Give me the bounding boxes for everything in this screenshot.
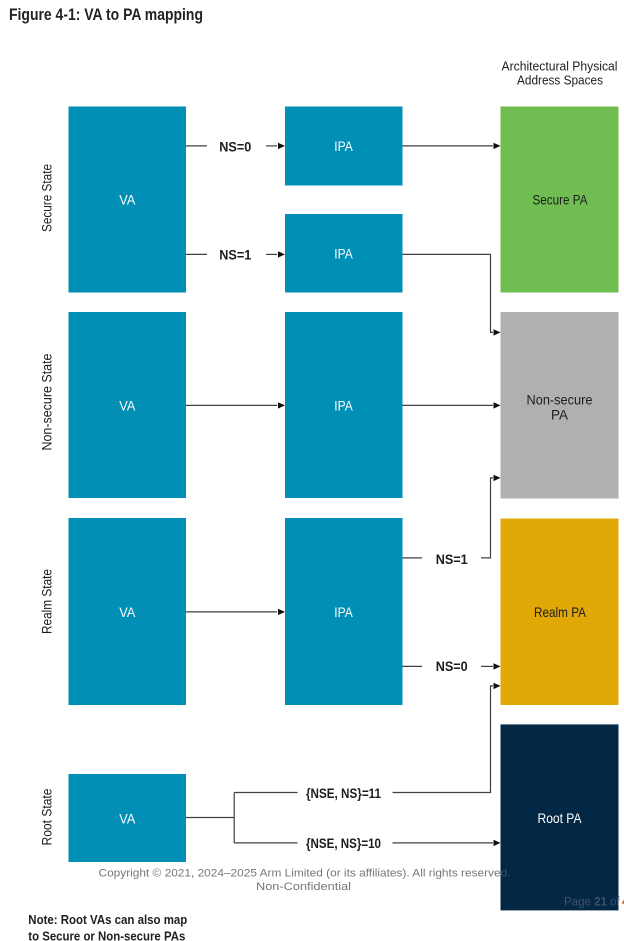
svg-text:VA: VA [119,811,136,826]
svg-text:Copyright © 2021, 2024–2025 Ar: Copyright © 2021, 2024–2025 Arm Limited … [99,868,511,880]
svg-text:Non-secure: Non-secure [527,392,593,407]
svg-text:NS=0: NS=0 [436,658,468,674]
svg-text:{NSE, NS}=10: {NSE, NS}=10 [306,836,381,851]
svg-text:Secure State: Secure State [39,164,54,232]
svg-text:Figure 4-1: VA to PA mapping: Figure 4-1: VA to PA mapping [9,6,203,24]
svg-text:Page 21 of: Page 21 of [564,897,620,909]
svg-text:Secure PA: Secure PA [533,193,589,208]
svg-text:NS=1: NS=1 [436,551,468,567]
svg-text:Realm State: Realm State [39,569,54,634]
svg-text:Root PA: Root PA [538,811,583,826]
svg-text:Address Spaces: Address Spaces [517,73,603,87]
svg-text:NS=0: NS=0 [219,139,251,155]
svg-text:Root State: Root State [39,789,54,846]
svg-text:NS=1: NS=1 [219,247,251,263]
svg-text:Note: Root VAs can also map: Note: Root VAs can also map [28,912,187,927]
svg-text:Realm PA: Realm PA [534,605,587,620]
svg-text:Non-secure State: Non-secure State [39,354,54,451]
svg-text:IPA: IPA [334,605,353,620]
svg-text:Non-Confidential: Non-Confidential [256,881,351,893]
svg-text:IPA: IPA [334,398,353,413]
svg-text:to Secure or Non-secure PAs: to Secure or Non-secure PAs [28,929,185,941]
svg-text:IPA: IPA [334,247,353,262]
svg-text:IPA: IPA [334,139,353,154]
svg-text:Architectural Physical: Architectural Physical [502,60,618,74]
svg-text:VA: VA [119,193,136,208]
svg-text:{NSE, NS}=11: {NSE, NS}=11 [306,786,381,801]
svg-text:PA: PA [551,407,569,422]
svg-text:VA: VA [119,605,136,620]
svg-text:VA: VA [119,398,136,413]
